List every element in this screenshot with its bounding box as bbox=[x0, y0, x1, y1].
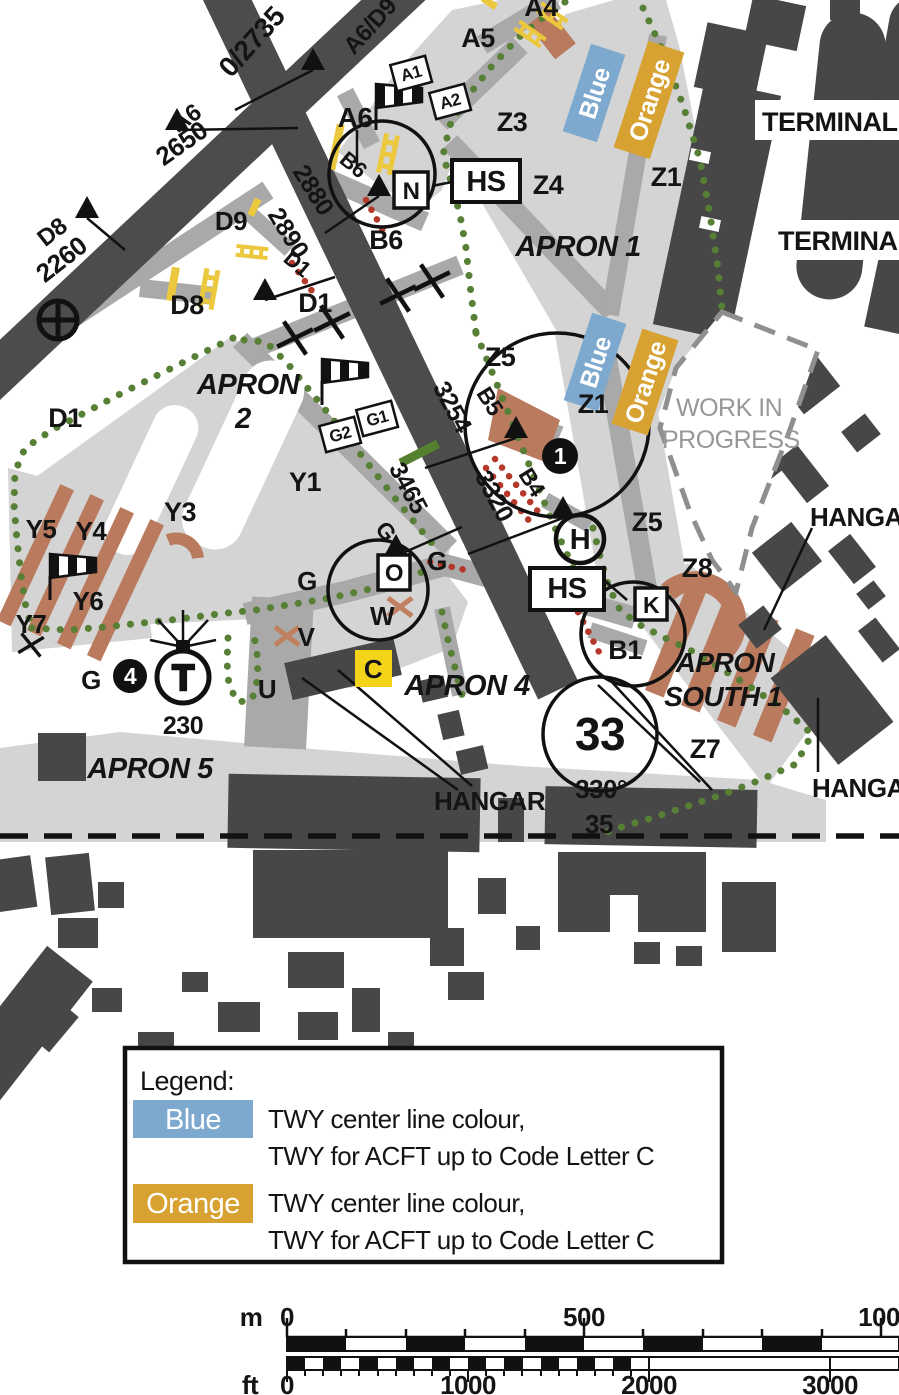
twy-z4: Z4 bbox=[533, 170, 564, 200]
twy-z1-south: Z1 bbox=[578, 389, 609, 419]
twy-z1: Z1 bbox=[651, 162, 682, 192]
twy-z8: Z8 bbox=[682, 553, 713, 583]
terminal-label-2: TERMINAL bbox=[778, 226, 899, 256]
legend-orange-line1: TWY center line colour, bbox=[268, 1188, 525, 1218]
apron-5-label: APRON 5 bbox=[86, 753, 214, 785]
twy-g-apron: G bbox=[297, 566, 317, 596]
twy-v: V bbox=[298, 622, 316, 652]
stand-c: C bbox=[364, 654, 383, 684]
spot-4: 4 bbox=[124, 663, 137, 689]
apron-south-label-line2: SOUTH 1 bbox=[664, 681, 782, 712]
legend-blue-swatch-label: Blue bbox=[165, 1104, 221, 1136]
scale-ft-0: 0 bbox=[280, 1370, 294, 1395]
twy-g-mid: G bbox=[427, 546, 447, 576]
twy-a4: A4 bbox=[524, 0, 558, 22]
legend-orange-line2: TWY for ACFT up to Code Letter C bbox=[268, 1225, 654, 1255]
wip-label-line2: PROGRESS bbox=[662, 426, 800, 454]
hangar-label-bottom-right: HANGAR bbox=[812, 773, 899, 803]
twy-a6: A6 bbox=[338, 102, 373, 133]
twy-y3: Y3 bbox=[164, 497, 197, 527]
twy-y6: Y6 bbox=[73, 586, 104, 616]
scale-bar: m 0 500 1000 ft 0 1000 2000 3000 bbox=[240, 1302, 899, 1395]
scale-m-unit: m bbox=[240, 1302, 263, 1332]
helipad-h: H bbox=[570, 524, 590, 556]
apron-2-label-line1: APRON bbox=[196, 369, 301, 401]
twy-z7: Z7 bbox=[690, 734, 721, 764]
twy-d8: D8 bbox=[170, 290, 204, 320]
legend-title: Legend: bbox=[140, 1066, 234, 1096]
apron-4-label: APRON 4 bbox=[403, 670, 530, 702]
twy-b1: B1 bbox=[608, 635, 642, 665]
twy-y5: Y5 bbox=[26, 514, 57, 544]
sign-o: O bbox=[385, 560, 403, 587]
twy-a5: A5 bbox=[461, 23, 495, 53]
twy-y7: Y7 bbox=[16, 609, 47, 639]
beacon-elevation: 230 bbox=[163, 712, 203, 740]
twy-z3: Z3 bbox=[497, 107, 528, 137]
aerodrome-chart: A6/D9 0/2735 2880 2890 3254 3465 3320 A6… bbox=[0, 0, 899, 1395]
beacon-t: T bbox=[172, 657, 194, 698]
spot-1: 1 bbox=[554, 443, 567, 469]
rwy-33-heading: 330° bbox=[575, 774, 627, 804]
twy-d1: D1 bbox=[298, 288, 332, 318]
sign-n: N bbox=[403, 178, 420, 205]
twy-w: W bbox=[370, 601, 395, 631]
hangar-label-mid: HANGAR bbox=[434, 786, 546, 816]
rwy-33: 33 bbox=[575, 708, 625, 760]
twy-d9: D9 bbox=[215, 206, 247, 236]
twy-g-south: G bbox=[81, 665, 101, 695]
compulsory-reporting-point-icon bbox=[39, 301, 77, 339]
scale-ft-3000: 3000 bbox=[802, 1370, 858, 1395]
building-notch bbox=[610, 895, 638, 935]
twy-u: U bbox=[258, 674, 276, 704]
legend-orange-swatch-label: Orange bbox=[146, 1188, 240, 1220]
twy-b6: B6 bbox=[369, 225, 403, 255]
apron-2-label-line2: 2 bbox=[234, 403, 251, 435]
twy-y4: Y4 bbox=[76, 516, 108, 546]
scale-ft-2000: 2000 bbox=[621, 1370, 677, 1395]
wip-label-line1: WORK IN bbox=[676, 394, 782, 422]
twy-z5: Z5 bbox=[485, 342, 516, 372]
scale-ft-unit: ft bbox=[242, 1370, 259, 1395]
scale-m-0: 0 bbox=[280, 1302, 294, 1332]
scale-m-1000: 1000 bbox=[858, 1302, 899, 1332]
twy-y1: Y1 bbox=[289, 467, 322, 497]
legend-blue-line2: TWY for ACFT up to Code Letter C bbox=[268, 1141, 654, 1171]
legend-blue-line1: TWY center line colour, bbox=[268, 1104, 525, 1134]
terminal-label-1: TERMINAL bbox=[762, 107, 897, 137]
rwy-35: 35 bbox=[585, 809, 613, 839]
hotspot-hs2: HS bbox=[547, 573, 586, 605]
twy-d1-west: D1 bbox=[48, 403, 82, 433]
twy-b4: B4 bbox=[513, 463, 550, 501]
hotspot-hs1: HS bbox=[466, 166, 505, 198]
apron-1-label: APRON 1 bbox=[514, 231, 640, 263]
legend: Legend: Blue TWY center line colour, TWY… bbox=[125, 1048, 722, 1262]
hangar-label-right: HANGAR bbox=[810, 502, 899, 532]
sign-k: K bbox=[643, 592, 660, 618]
scale-ft-1000: 1000 bbox=[440, 1370, 496, 1395]
scale-m-500: 500 bbox=[563, 1302, 605, 1332]
apron-south-label-line1: APRON bbox=[675, 647, 776, 678]
twy-z5-south: Z5 bbox=[632, 507, 663, 537]
